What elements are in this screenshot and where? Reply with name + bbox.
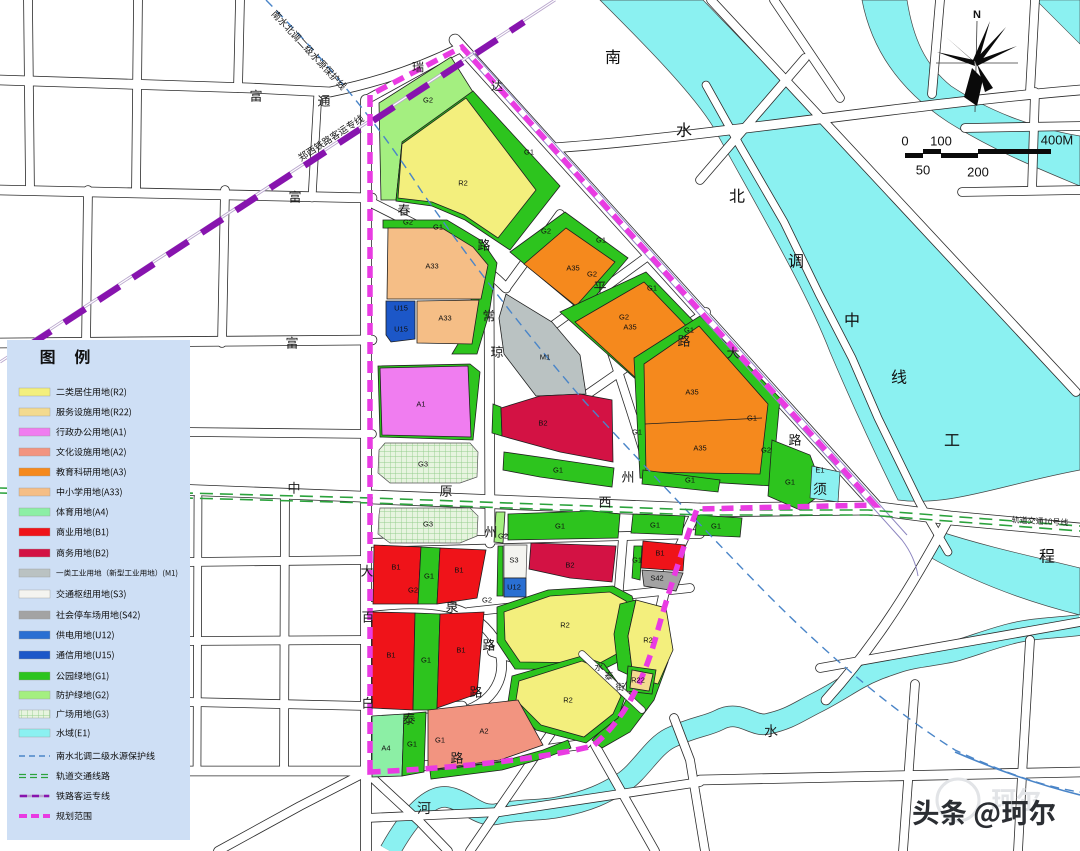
svg-text:G2: G2	[482, 596, 492, 605]
svg-text:B2: B2	[565, 561, 574, 570]
svg-text:B1: B1	[655, 549, 664, 558]
svg-text:B1: B1	[391, 563, 400, 572]
svg-text:G1: G1	[596, 236, 606, 245]
svg-text:G1: G1	[555, 522, 565, 531]
svg-text:G1: G1	[407, 740, 417, 749]
svg-text:G3: G3	[423, 520, 433, 529]
svg-text:M1: M1	[540, 353, 550, 362]
svg-text:A33: A33	[425, 262, 438, 271]
svg-text:R2: R2	[563, 696, 573, 705]
svg-text:G1: G1	[524, 148, 534, 157]
svg-text:G1: G1	[711, 522, 721, 531]
svg-text:G1: G1	[632, 428, 642, 437]
svg-text:G1: G1	[650, 521, 660, 530]
svg-text:U15: U15	[394, 304, 408, 313]
svg-text:A35: A35	[623, 323, 636, 332]
svg-text:G2: G2	[498, 532, 508, 541]
svg-text:G1: G1	[684, 326, 694, 335]
svg-text:G1: G1	[785, 478, 795, 487]
svg-text:G2: G2	[761, 446, 771, 455]
svg-text:R2: R2	[458, 179, 468, 188]
svg-text:U12: U12	[507, 583, 521, 592]
svg-text:100: 100	[930, 134, 952, 149]
svg-text:50: 50	[916, 163, 930, 178]
svg-text:B1: B1	[456, 646, 465, 655]
svg-text:G3: G3	[418, 460, 428, 469]
svg-text:G1: G1	[685, 476, 695, 485]
svg-text:G2: G2	[403, 218, 413, 227]
svg-text:A2: A2	[479, 727, 488, 736]
svg-text:S42: S42	[650, 574, 663, 583]
svg-text:G1: G1	[435, 736, 445, 745]
svg-text:400M: 400M	[1041, 133, 1074, 148]
svg-text:B1: B1	[454, 566, 463, 575]
svg-text:A35: A35	[685, 388, 698, 397]
svg-text:A35: A35	[693, 444, 706, 453]
svg-text:S3: S3	[509, 556, 518, 565]
svg-text:G1: G1	[647, 284, 657, 293]
svg-text:G2: G2	[541, 227, 551, 236]
svg-text:G1: G1	[433, 223, 443, 232]
svg-text:N: N	[973, 9, 981, 21]
svg-text:A1: A1	[416, 400, 425, 409]
svg-text:R2: R2	[643, 636, 653, 645]
svg-text:A35: A35	[566, 264, 579, 273]
svg-text:A4: A4	[381, 744, 390, 753]
svg-text:A33: A33	[438, 314, 451, 323]
svg-text:G2: G2	[408, 586, 418, 595]
svg-text:G2: G2	[619, 313, 629, 322]
svg-text:0: 0	[901, 134, 908, 149]
svg-text:U15: U15	[394, 325, 408, 334]
svg-text:E1: E1	[815, 466, 824, 475]
svg-text:G1: G1	[421, 656, 431, 665]
svg-text:G2: G2	[587, 270, 597, 279]
svg-text:R22: R22	[631, 676, 645, 685]
svg-text:B1: B1	[386, 651, 395, 660]
svg-text:R2: R2	[560, 621, 570, 630]
svg-text:G1: G1	[424, 572, 434, 581]
svg-text:G1: G1	[632, 556, 642, 565]
svg-text:G2: G2	[423, 96, 433, 105]
svg-text:B2: B2	[538, 419, 547, 428]
svg-text:200: 200	[967, 165, 989, 180]
svg-text:G1: G1	[747, 414, 757, 423]
svg-text:G1: G1	[553, 466, 563, 475]
